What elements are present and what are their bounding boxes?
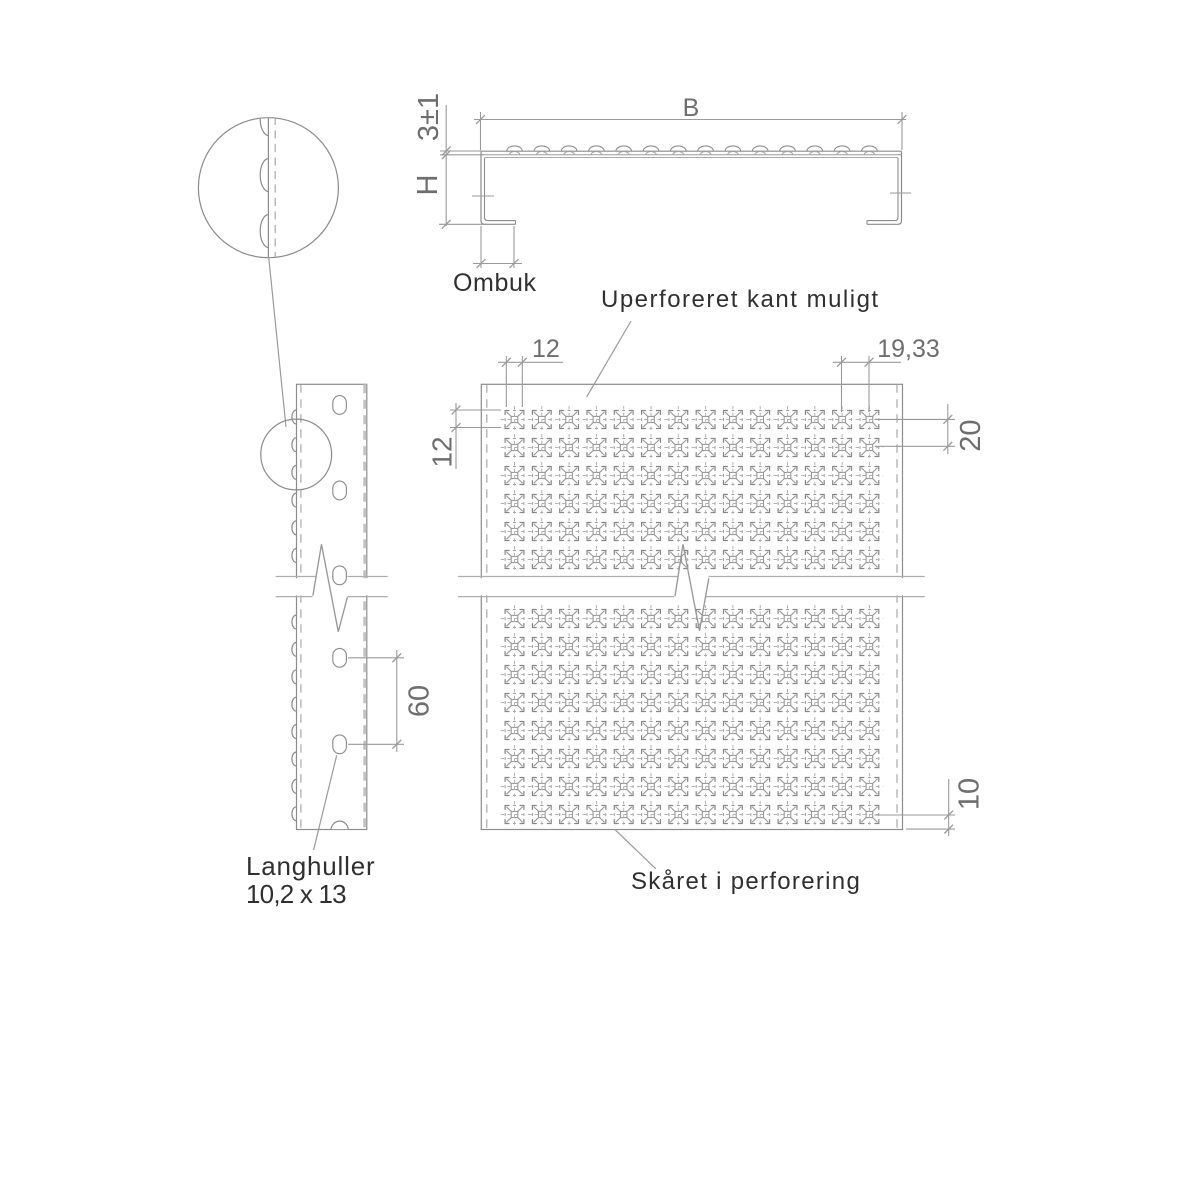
svg-text:10: 10 bbox=[954, 778, 986, 810]
svg-text:Skåret i perforering: Skåret i perforering bbox=[631, 868, 861, 895]
svg-text:20: 20 bbox=[955, 419, 987, 451]
svg-text:Ombuk: Ombuk bbox=[453, 269, 537, 297]
svg-text:H: H bbox=[412, 175, 444, 196]
svg-text:19,33: 19,33 bbox=[877, 335, 940, 363]
svg-text:10,2 x 13: 10,2 x 13 bbox=[246, 879, 346, 909]
svg-text:12: 12 bbox=[427, 436, 458, 467]
svg-text:3±1: 3±1 bbox=[413, 93, 445, 141]
svg-text:Uperforeret kant muligt: Uperforeret kant muligt bbox=[601, 286, 880, 313]
svg-text:60: 60 bbox=[404, 685, 436, 717]
svg-text:B: B bbox=[683, 94, 700, 122]
svg-text:12: 12 bbox=[532, 335, 560, 363]
svg-text:Langhuller: Langhuller bbox=[246, 851, 375, 881]
